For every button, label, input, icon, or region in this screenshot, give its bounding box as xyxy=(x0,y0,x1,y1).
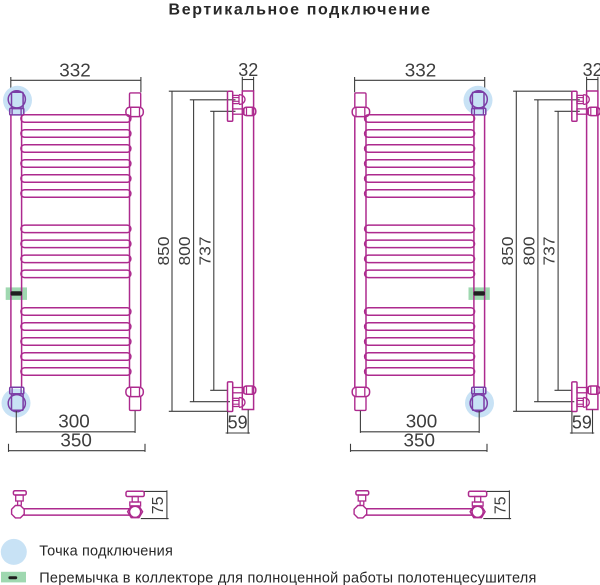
svg-text:737: 737 xyxy=(197,236,214,265)
svg-text:32: 32 xyxy=(238,60,258,80)
svg-text:350: 350 xyxy=(60,430,92,450)
svg-text:75: 75 xyxy=(493,496,510,514)
svg-text:59: 59 xyxy=(228,412,248,432)
svg-text:800: 800 xyxy=(177,236,194,265)
svg-text:Точка подключения: Точка подключения xyxy=(39,543,173,559)
svg-text:850: 850 xyxy=(500,236,517,265)
svg-text:350: 350 xyxy=(404,430,436,450)
svg-text:800: 800 xyxy=(521,236,538,265)
svg-text:300: 300 xyxy=(58,411,90,431)
svg-text:32: 32 xyxy=(583,60,600,80)
svg-text:300: 300 xyxy=(406,411,438,431)
svg-text:Перемычка в коллекторе для пол: Перемычка в коллекторе для полноценной р… xyxy=(39,570,536,585)
svg-text:737: 737 xyxy=(542,236,559,265)
svg-text:332: 332 xyxy=(405,61,437,81)
svg-text:75: 75 xyxy=(150,496,167,514)
svg-text:59: 59 xyxy=(572,412,592,432)
svg-text:850: 850 xyxy=(156,236,173,265)
svg-text:332: 332 xyxy=(59,61,91,81)
